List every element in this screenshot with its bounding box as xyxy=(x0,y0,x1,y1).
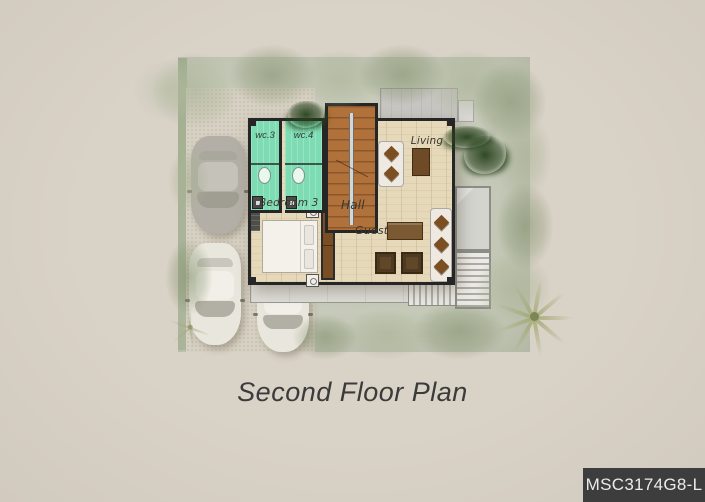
floor-plan-canvas: wc.3 wc.4 Living Bedroom 3 xyxy=(0,0,705,502)
sofa-cushion xyxy=(434,259,450,275)
room-label-wc3: wc.3 xyxy=(251,130,279,141)
guest-table xyxy=(387,222,423,240)
bed xyxy=(262,220,318,273)
sofa-cushion xyxy=(434,237,450,253)
palm-leaf xyxy=(190,327,211,337)
bed-pillow xyxy=(304,249,314,269)
car-windshield xyxy=(263,315,303,329)
plan-title: Second Floor Plan xyxy=(0,377,705,408)
wall-post xyxy=(447,277,455,285)
living-sofa xyxy=(378,141,404,187)
guest-chair xyxy=(375,252,396,274)
exterior-stairs-right xyxy=(455,251,491,309)
wc-partition-wall xyxy=(251,163,279,165)
nightstand xyxy=(306,274,319,287)
guest-chair xyxy=(401,252,423,274)
upper-terrace xyxy=(380,88,458,122)
car-mirror xyxy=(240,299,245,302)
room-label-guest: Guest xyxy=(355,224,388,237)
palm-leaf xyxy=(189,328,195,350)
toilet-fixture xyxy=(258,167,271,184)
upper-terrace-extension xyxy=(458,100,474,122)
guest-sofa xyxy=(430,208,452,282)
stairwell xyxy=(325,103,378,233)
wall-post xyxy=(447,118,455,126)
sofa-cushion xyxy=(434,215,450,231)
palm-leaf xyxy=(534,316,574,320)
bottom-steps xyxy=(408,283,456,306)
car-roof xyxy=(196,271,234,301)
car-roof xyxy=(198,162,238,190)
palm-trunk xyxy=(530,312,539,321)
wall-post xyxy=(248,118,256,126)
car-mirror xyxy=(253,313,258,316)
car-mirror xyxy=(187,190,192,193)
sofa-cushion xyxy=(384,146,400,162)
sofa-cushion xyxy=(384,166,400,182)
plan-code-badge: MSC3174G8-L xyxy=(583,468,705,502)
palm-tree xyxy=(492,278,576,358)
bed-pillow xyxy=(304,225,314,245)
car-gray xyxy=(191,136,245,234)
bed-fold-line xyxy=(300,221,301,272)
palm-leaf xyxy=(172,327,190,343)
palm-trunk xyxy=(188,325,193,330)
wall-post xyxy=(248,277,256,285)
room-label-hall: Hall xyxy=(341,198,365,212)
wc-partition-wall xyxy=(285,163,322,165)
car-mirror xyxy=(185,299,190,302)
bottom-walkway xyxy=(250,284,410,303)
car-windshield xyxy=(197,192,239,208)
right-balcony xyxy=(455,186,491,251)
second-floor-building: wc.3 wc.4 Living Bedroom 3 xyxy=(248,118,455,285)
coffee-table xyxy=(412,148,430,176)
palm-tree xyxy=(167,306,213,350)
car-rear-window xyxy=(199,151,237,160)
room-label-wc4: wc.4 xyxy=(285,130,322,141)
car-rear-window xyxy=(197,258,233,267)
toilet-fixture xyxy=(292,167,305,184)
room-label-bedroom3: Bedroom 3 xyxy=(259,197,319,209)
